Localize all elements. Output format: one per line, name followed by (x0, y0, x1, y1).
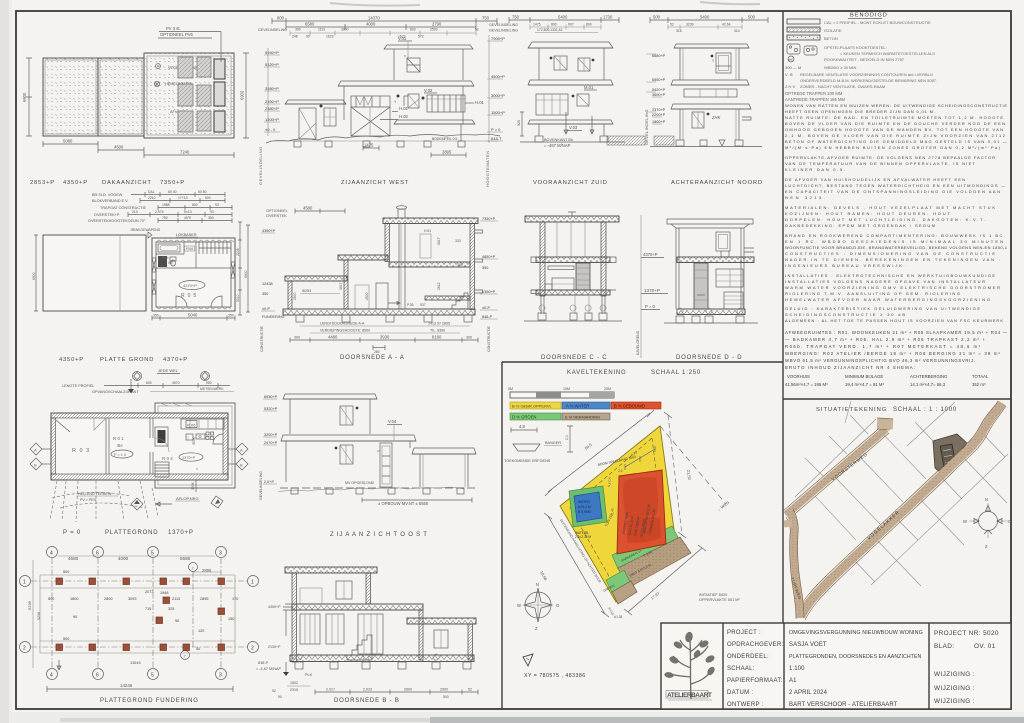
svg-text:500: 500 (63, 637, 69, 641)
svg-text:2073: 2073 (145, 590, 153, 594)
svg-text:ZHK: ZHK (711, 115, 721, 120)
svg-text:3980+P: 3980+P (265, 86, 279, 91)
svg-text:LENGTEDOORSNEDE A-A: LENGTEDOORSNEDE A-A (320, 322, 365, 326)
svg-text:OPTIONEEL: OPTIONEEL (266, 209, 288, 213)
svg-text:350: 350 (482, 266, 488, 270)
svg-text:DOORSNEDE D - D: DOORSNEDE D - D (676, 355, 742, 361)
svg-text:2790: 2790 (432, 22, 442, 27)
svg-text:W: W (963, 519, 967, 524)
svg-text:172,800,1331,52: 172,800,1331,52 (537, 28, 563, 32)
svg-text:800: 800 (586, 23, 592, 27)
svg-text:3: 3 (219, 673, 222, 679)
svg-text:OV. 01: OV. 01 (974, 643, 996, 650)
svg-text:6550+P: 6550+P (652, 78, 666, 82)
svg-text:14,1 m²×4,7= 66,3: 14,1 m²×4,7= 66,3 (910, 382, 946, 387)
svg-text:2380+P: 2380+P (265, 106, 279, 111)
svg-text:MINIMUM BIJLAGE: MINIMUM BIJLAGE (845, 374, 883, 379)
svg-text:1948: 1948 (160, 591, 168, 595)
svg-text:A % WATER: A % WATER (566, 404, 589, 409)
svg-text:352 m³: 352 m³ (972, 382, 986, 387)
svg-text:B: B (34, 463, 37, 468)
svg-text:XY = 780575 , 483386: XY = 780575 , 483386 (524, 673, 586, 679)
svg-text:800: 800 (410, 28, 416, 32)
svg-text:OMGEVINGSVERGUNNING NIEUWBOUW: OMGEVINGSVERGUNNING NIEUWBOUW WONING (789, 630, 923, 636)
svg-text:350: 350 (457, 263, 463, 267)
svg-text:1350+P: 1350+P (482, 290, 496, 294)
svg-text:BRUTO INHOUD ZIJAANZICHT NR 4: BRUTO INHOUD ZIJAANZICHT NR 4 SHEMA: (785, 365, 915, 370)
svg-text:WBDBO ≥ 30 MIN: WBDBO ≥ 30 MIN (824, 65, 857, 70)
svg-text:2612: 2612 (437, 282, 441, 290)
svg-text:715: 715 (145, 607, 151, 611)
svg-text:P = 0: P = 0 (63, 530, 81, 536)
svg-text:500: 500 (748, 15, 756, 20)
svg-text:6: 6 (96, 551, 99, 557)
svg-text:4370+P: 4370+P (163, 357, 188, 363)
svg-text:⊞E: ⊞E (117, 443, 123, 448)
svg-text:GEVELINDELING: GEVELINDELING (259, 471, 263, 500)
svg-text:B % GEBOUWD: B % GEBOUWD (614, 404, 645, 409)
svg-text:H.51: H.51 (424, 229, 431, 233)
svg-text:DE AFVOER VAN HUISHOUDELIJK EN: DE AFVOER VAN HUISHOUDELIJK EN AFVALWATE… (785, 177, 965, 182)
svg-text:537: 537 (420, 303, 426, 307)
svg-text:500: 500 (443, 695, 449, 699)
svg-text:B: B (240, 463, 243, 468)
svg-text:5: 5 (151, 551, 154, 557)
svg-text:5: 5 (151, 673, 154, 679)
svg-text:5420+P: 5420+P (652, 88, 666, 92)
svg-text:ACHTERAANZICHT NOORD: ACHTERAANZICHT NOORD (671, 180, 763, 186)
svg-text:8160: 8160 (432, 335, 442, 340)
svg-text:NEN 3215.: NEN 3215. (785, 195, 825, 200)
svg-text:JEDE WEL: JEDE WEL (158, 368, 179, 373)
svg-text:JRNW.GEWAPEND: JRNW.GEWAPEND (130, 228, 161, 232)
svg-text:13645: 13645 (130, 661, 141, 665)
svg-text:4850+P: 4850+P (482, 255, 496, 259)
svg-text:920: 920 (517, 120, 521, 126)
svg-text:R 0 1: R 0 1 (113, 436, 124, 441)
svg-text:= -467 M/NAP: = -467 M/NAP (544, 143, 571, 148)
svg-text:WOONFUNCTIE VOOR BRANDZIJDE, B: WOONFUNCTIE VOOR BRANDZIJDE, BRANDWATERB… (785, 245, 1008, 250)
svg-text:4: 4 (50, 673, 53, 679)
svg-text:1502: 1502 (290, 681, 298, 685)
svg-text:V.03: V.03 (569, 125, 578, 130)
svg-text:VOORHUIS: VOORHUIS (787, 374, 810, 379)
svg-text:2210: 2210 (148, 196, 156, 200)
svg-text:P = ± 0: P = ± 0 (114, 453, 126, 457)
svg-text:Z.H.V: Z.H.V (785, 84, 796, 89)
svg-text:3000+P: 3000+P (491, 93, 505, 98)
svg-text:P = 0: P = 0 (645, 304, 655, 309)
svg-text:500: 500 (653, 15, 661, 20)
svg-text:ALGEMEEN : AL HET TOE TE PASSE: ALGEMEEN : AL HET TOE TE PASSEN HOUT IS … (785, 318, 1003, 323)
svg-text:600: 600 (205, 196, 211, 200)
svg-text:5940+P: 5940+P (265, 50, 279, 55)
svg-text:2,017: 2,017 (326, 688, 335, 692)
svg-text:4580: 4580 (68, 556, 79, 561)
svg-text:N: N (985, 497, 988, 502)
svg-text:PROJECT :: PROJECT : (727, 630, 761, 636)
svg-text:60 40: 60 40 (168, 190, 177, 194)
svg-text:7240: 7240 (180, 150, 190, 155)
svg-text:BLOKVERBAND E.V.: BLOKVERBAND E.V. (92, 199, 128, 203)
svg-text:2895: 2895 (442, 150, 452, 155)
svg-text:BOVEN DE VLOER VAN DIE RUIMTE: BOVEN DE VLOER VAN DIE RUIMTE EN DE DOUC… (785, 121, 1005, 126)
svg-text:6900: 6900 (240, 90, 245, 100)
svg-text:GELUID : KARAKTERISTIEK GELUID: GELUID : KARAKTERISTIEK GELUIDWERING VAN… (785, 306, 980, 311)
svg-text:280: 280 (374, 350, 380, 354)
svg-text:800: 800 (551, 23, 557, 27)
svg-text:1: 1 (251, 580, 254, 586)
svg-text:Z IJ A A N Z I C H T O O S T: Z IJ A A N Z I C H T O O S T (330, 532, 428, 538)
svg-text:ZIJAANZICHT WEST: ZIJAANZICHT WEST (341, 180, 409, 186)
svg-text:PV > PEIL: PV > PEIL (80, 498, 97, 502)
svg-text:SCHAAL 1:250: SCHAAL 1:250 (651, 370, 701, 376)
svg-text:SCHAAL : 1 : 1000: SCHAAL : 1 : 1000 (893, 407, 957, 413)
svg-text:5686: 5686 (180, 556, 191, 561)
svg-text:GEVELINDELING: GEVELINDELING (489, 29, 518, 33)
svg-text:6680+P: 6680+P (652, 54, 666, 58)
svg-text:KAVELGRENS: KAVELGRENS (636, 330, 640, 355)
svg-text:6900: 6900 (244, 270, 248, 278)
svg-text:1475: 1475 (364, 143, 374, 148)
svg-text:HELLEND TERREIN: HELLEND TERREIN (78, 492, 112, 496)
svg-text:3000: 3000 (341, 28, 349, 32)
svg-text:2,6: 2,6 (618, 469, 623, 473)
svg-text:⊕K: ⊕K (788, 58, 794, 62)
svg-text:60 80: 60 80 (198, 190, 207, 194)
svg-text:2617: 2617 (437, 237, 441, 245)
svg-text:1800: 1800 (70, 597, 78, 601)
svg-text:WIJZIGING :: WIJZIGING : (934, 698, 975, 705)
svg-text:ONTWERP :: ONTWERP : (727, 702, 764, 708)
svg-text:5×13: 5×13 (184, 210, 192, 214)
svg-text:GEVELINDELING: GEVELINDELING (258, 28, 287, 32)
svg-text:OPTREDE TRAPPEN 200 MM: OPTREDE TRAPPEN 200 MM (785, 91, 843, 96)
svg-text:AFWEEGRUIMTES : R01. WOONKEUKE: AFWEEGRUIMTES : R01. WOONKEUKEN 21 m² + … (785, 330, 1008, 335)
svg-text:40: 40 (196, 647, 200, 651)
svg-text:4370+P: 4370+P (183, 283, 197, 288)
svg-text:GEVELINDELING: GEVELINDELING (258, 146, 263, 185)
svg-text:800: 800 (192, 203, 198, 207)
svg-text:BETON OF WATERDICHTING DIE GE: BETON OF WATERDICHTING DIE GEMIDDELD MAG… (785, 139, 1007, 144)
svg-text:OPPERVLAKTE-AFVOER RUIMTE: DE: OPPERVLAKTE-AFVOER RUIMTE: DE VOLGENS NE… (785, 155, 995, 160)
svg-text:SCHEIDINGSCONSTRUCTIE ≥ 30 dB: SCHEIDINGSCONSTRUCTIE ≥ 30 dB (785, 312, 905, 317)
svg-text:4350+P: 4350+P (59, 357, 84, 363)
svg-text:GEVELINDELING: GEVELINDELING (489, 23, 518, 27)
svg-text:1623: 1623 (326, 35, 334, 39)
svg-text:2,033: 2,033 (363, 688, 372, 692)
svg-text:10M: 10M (563, 387, 570, 391)
svg-text:19,4 m²×4,7 = 91 M³: 19,4 m²×4,7 = 91 M³ (845, 382, 884, 387)
svg-text:B 0,56M: B 0,56M (578, 510, 591, 514)
svg-text:2895: 2895 (200, 597, 208, 601)
svg-text:D % GROEN: D % GROEN (512, 415, 536, 420)
svg-text:2 APRIL 2024: 2 APRIL 2024 (789, 690, 828, 696)
svg-text:TRAPGAT CONSTRUCTIE: TRAPGAT CONSTRUCTIE (100, 206, 147, 210)
svg-text:1800+P: 1800+P (652, 120, 666, 124)
svg-text:V.01: V.01 (398, 36, 407, 41)
svg-text:Z: Z (535, 626, 538, 631)
svg-text:6: 6 (96, 673, 99, 679)
svg-text:1370+P: 1370+P (168, 530, 194, 536)
svg-text:PLK: PLK (305, 673, 313, 677)
svg-text:2208: 2208 (236, 248, 240, 256)
svg-text:4370+P: 4370+P (643, 252, 658, 257)
svg-text:R 0 3: R 0 3 (72, 448, 90, 454)
svg-text:572: 572 (418, 35, 424, 39)
svg-text:3930: 3930 (380, 335, 390, 340)
svg-text:2200+P: 2200+P (652, 113, 666, 117)
svg-text:3093: 3093 (128, 597, 136, 601)
svg-text:R06: R06 (186, 246, 194, 251)
svg-text:DATUM :: DATUM : (727, 690, 753, 696)
svg-text:1500+P: 1500+P (491, 110, 505, 115)
svg-text:GEVELINDELING: GEVELINDELING (645, 109, 649, 145)
svg-text:14246: 14246 (120, 683, 133, 688)
svg-text:1988: 1988 (162, 203, 170, 207)
svg-text:1730: 1730 (603, 15, 613, 20)
svg-text:= KEUKEN TERMISCH WARMTETOESTE: = KEUKEN TERMISCH WARMTETOESTELLEN ALS (840, 51, 935, 56)
svg-text:120: 120 (198, 629, 204, 633)
svg-text:VERDIEPINGSHOOGTE: 8500: VERDIEPINGSHOOGTE: 8500 (320, 329, 370, 333)
svg-text:OPSTELPLAATS KOOKTOESTEL:: OPSTELPLAATS KOOKTOESTEL: (824, 45, 887, 50)
svg-text:v: v (404, 54, 406, 58)
svg-text:DAKBEDEKKING: EPDM MET GROENDA: DAKBEDEKKING: EPDM MET GROENDAK / SEDUM (785, 223, 935, 228)
svg-text:ROOKKWALITEIT - BEDOELD IN NEN: ROOKKWALITEIT - BEDOELD IN NEN 2757 (824, 57, 905, 62)
svg-text:= -4,67 M/NAP: = -4,67 M/NAP (256, 667, 281, 671)
svg-text:3239: 3239 (686, 23, 694, 27)
svg-text:2,975: 2,975 (155, 210, 164, 214)
svg-text:1191: 1191 (318, 28, 325, 32)
svg-text:MV OPGESLOND: MV OPGESLOND (345, 481, 375, 485)
svg-text:OPPERVLAKTE 501 M²: OPPERVLAKTE 501 M² (699, 598, 740, 602)
svg-text:Z: Z (985, 544, 988, 549)
svg-text:TOTAAL: TOTAAL (972, 374, 989, 379)
svg-text:DOORSNEDE B - B: DOORSNEDE B - B (334, 698, 400, 704)
svg-text:214: 214 (132, 210, 138, 214)
svg-text:2,2×2,35 M: 2,2×2,35 M (575, 535, 591, 539)
svg-text:INSTALLATIES VOLGENS NADERE O: INSTALLATIES VOLGENS NADERE OPGAVE VAN I… (785, 279, 985, 284)
svg-text:45°E: 45°E (184, 216, 192, 220)
svg-text:93: 93 (215, 203, 219, 207)
svg-text:90: 90 (73, 615, 77, 619)
svg-text:ACHTERBERGING: ACHTERBERGING (910, 374, 948, 379)
svg-text:6580: 6580 (305, 22, 315, 27)
svg-text:2,0+P: 2,0+P (264, 480, 274, 484)
svg-text:5080: 5080 (63, 139, 73, 144)
svg-text:SASJA VOET: SASJA VOET (789, 642, 827, 648)
svg-text:350: 350 (153, 314, 159, 318)
svg-text:333: 333 (455, 239, 461, 243)
svg-text:DORPELEN: HOUT MET LUCHTLEIDIN: DORPELEN: HOUT MET LUCHTLEIDING, DAKGOTE… (785, 217, 985, 222)
svg-text:OMHOOG GEBOGEN HOOGTE VAN DE W: OMHOOG GEBOGEN HOOGTE VAN DE WANDEN BV, … (785, 127, 1003, 132)
svg-text:MATERIALEN: GEVELS , HOUT VEZ: MATERIALEN: GEVELS , HOUT VEZELPLAAT MET… (785, 205, 995, 210)
svg-text:SITUATIETEKENING: SITUATIETEKENING (816, 407, 887, 413)
svg-text:KAVELTEKENING: KAVELTEKENING (567, 370, 627, 376)
svg-text:OVERSTEK+P: OVERSTEK+P (94, 213, 120, 217)
svg-text:6900: 6900 (22, 92, 27, 102)
svg-text:A1,38: A1,38 (614, 615, 623, 619)
svg-text:5236: 5236 (27, 600, 32, 610)
svg-text:7350+P: 7350+P (482, 217, 496, 221)
svg-text:□: □ (187, 436, 189, 440)
svg-text:2315: 2315 (290, 688, 298, 692)
svg-text:4350+P: 4350+P (63, 180, 88, 186)
svg-text:500: 500 (63, 570, 69, 574)
svg-text:2: 2 (251, 646, 254, 652)
svg-text:VOORAANZICHT ZUID: VOORAANZICHT ZUID (533, 180, 608, 186)
svg-text:4500: 4500 (114, 145, 124, 150)
svg-text:1475: 1475 (533, 23, 541, 27)
svg-text:WBVO 61,5 m² VERGUNNINGSPLICH: WBVO 61,5 m² VERGUNNINGSPLICHTIG BVO 46,… (785, 358, 975, 363)
svg-text:300: 300 (294, 336, 300, 340)
svg-text:OPDRACHGEVER:: OPDRACHGEVER: (727, 642, 784, 648)
svg-text:25M: 25M (604, 387, 611, 391)
svg-text:M.01: M.01 (584, 85, 594, 90)
svg-text:BOVENKANT Bk: BOVENKANT Bk (544, 138, 573, 142)
svg-text:PLATTEGRONDEN, DOORSNEDES EN A: PLATTEGRONDEN, DOORSNEDES EN AANZICHTEN (789, 654, 922, 660)
svg-text:A=5,2 M: A=5,2 M (578, 505, 591, 509)
svg-text:H.01: H.01 (475, 100, 485, 105)
svg-text:WBERGING: R02 ATELIER /BERGE: WBERGING: R02 ATELIER /BERGE 18 m² + R08… (785, 351, 1001, 356)
svg-text:2800: 2800 (104, 597, 112, 601)
svg-text:750: 750 (162, 216, 168, 220)
svg-text:LENGTE PROFIEL: LENGTE PROFIEL (62, 384, 95, 388)
svg-text:848-T: 848-T (491, 136, 502, 141)
svg-text:500: 500 (48, 597, 54, 601)
svg-text:AANTREDE TRAPPEN 185 MM: AANTREDE TRAPPEN 185 MM (785, 97, 845, 102)
svg-text:AFLOP.NRG: AFLOP.NRG (176, 496, 199, 501)
svg-text:90: 90 (306, 35, 310, 39)
svg-text:4500+P: 4500+P (491, 74, 505, 79)
svg-text:DAL: DAL (148, 190, 155, 194)
svg-text:316: 316 (676, 29, 682, 33)
svg-text:DAKAANZICHT: DAKAANZICHT (102, 180, 152, 186)
svg-text:350K: 350K (191, 481, 195, 490)
svg-text:314: 314 (734, 29, 740, 33)
svg-text:17+13: 17+13 (178, 196, 188, 200)
svg-text:350K: 350K (192, 436, 196, 445)
svg-text:14370: 14370 (368, 16, 380, 21)
svg-text:90: 90 (175, 619, 179, 623)
svg-text:5400: 5400 (558, 15, 568, 20)
svg-text:OVERSTEKHOOGTEKOZIJN 70°: OVERSTEKHOOGTEKOZIJN 70° (88, 219, 146, 223)
svg-text:3: 3 (219, 551, 222, 557)
svg-text:52: 52 (475, 28, 479, 32)
svg-text:6930+P: 6930+P (264, 395, 278, 399)
svg-text:838-P: 838-P (258, 661, 269, 665)
svg-text:800: 800 (277, 16, 285, 21)
svg-text:A1: A1 (789, 678, 797, 684)
svg-text:5400: 5400 (700, 15, 710, 20)
svg-text:300: 300 (295, 28, 301, 32)
svg-text:600: 600 (146, 381, 152, 385)
svg-text:HEEFT GEEN OPENINGEN DIE BREDE: HEEFT GEEN OPENINGEN DIE BREDER ZIJN DAN… (785, 109, 935, 114)
svg-text:V.04: V.04 (388, 419, 397, 424)
svg-text:RIOLERING T.M.V. AANSLUITING O: RIOLERING T.M.V. AANSLUITING OP GEM. RIO… (785, 291, 960, 296)
svg-text:350: 350 (262, 292, 268, 296)
svg-text:4350+P: 4350+P (268, 605, 281, 609)
svg-text:TOEKOMENDE ERFGENS: TOEKOMENDE ERFGENS (504, 459, 551, 463)
svg-text:350: 350 (208, 216, 214, 220)
svg-text:5320+P: 5320+P (264, 407, 278, 411)
svg-text:PV 3 st.: PV 3 st. (166, 26, 181, 31)
svg-text:2: 2 (23, 646, 26, 652)
svg-text:41,56m²×4,7 = 195 M³: 41,56m²×4,7 = 195 M³ (785, 382, 828, 387)
svg-text:R06b. TRAPGAT VERD. 1,7 m² + R: R06b. TRAPGAT VERD. 1,7 m² + R07 METERKA… (785, 344, 981, 349)
svg-text:⊞253: ⊞253 (302, 289, 311, 293)
svg-text:848-P: 848-P (482, 315, 493, 319)
svg-text:H.02: H.02 (399, 114, 409, 119)
svg-text:±0-P: ±0-P (482, 306, 490, 310)
svg-text:2500: 2500 (365, 292, 369, 300)
svg-text:INITIATIEF 5020: INITIATIEF 5020 (699, 593, 727, 597)
svg-text:300 — M: 300 — M (785, 65, 801, 70)
svg-text:METSELWERK: METSELWERK (200, 387, 224, 391)
svg-text:WATER: WATER (578, 500, 590, 504)
svg-text:NATTE RUIMTE: DE BAD- EN TOILE: NATTE RUIMTE: DE BAD- EN TOILETRUIMTE MO… (785, 115, 1003, 120)
svg-text:907: 907 (568, 23, 574, 27)
svg-text:248: 248 (292, 35, 298, 39)
svg-text:52: 52 (468, 688, 472, 692)
svg-text:± OPBOUW MV.NT ± 6550: ± OPBOUW MV.NT ± 6550 (378, 501, 429, 506)
svg-text:REGELBARE VENTILATIE VOORZIENI: REGELBARE VENTILATIE VOORZIENINGS CONTOU… (800, 72, 933, 77)
svg-text:3917: 3917 (339, 282, 343, 290)
svg-text:3010: 3010 (236, 294, 240, 302)
svg-text:52: 52 (272, 689, 276, 693)
svg-text:PAPIERFORMAAT:: PAPIERFORMAAT: (727, 678, 783, 684)
svg-text:5040: 5040 (188, 313, 198, 318)
svg-text:DOORSNEDE A - A: DOORSNEDE A - A (340, 355, 405, 361)
svg-text:PLATTE GROND: PLATTE GROND (100, 357, 154, 363)
svg-text:950: 950 (206, 381, 212, 385)
svg-text:FUNDERING: FUNDERING (262, 315, 285, 319)
svg-text:1: 1 (23, 580, 26, 586)
svg-text:P.35: P.35 (407, 303, 414, 307)
svg-text:±0-P: ±0-P (262, 307, 270, 311)
svg-text:BENODIGD: BENODIGD (850, 13, 888, 19)
svg-text:2600: 2600 (293, 292, 297, 300)
svg-text:1413 57 2895: 1413 57 2895 (428, 322, 450, 326)
svg-text:3200+P: 3200+P (264, 433, 278, 437)
svg-text:CONSTRUCTIE: CONSTRUCTIE (260, 325, 264, 352)
svg-text:93: 93 (210, 210, 214, 214)
svg-text:2800: 2800 (404, 688, 412, 692)
svg-text:2,0: 2,0 (565, 435, 569, 440)
svg-text:PLATTEGROND: PLATTEGROND (105, 530, 158, 536)
svg-text:4: 4 (50, 551, 53, 557)
svg-text:2370+P: 2370+P (652, 108, 666, 112)
svg-text:325: 325 (168, 607, 174, 611)
svg-text:2593: 2593 (430, 28, 438, 32)
svg-text:PROJECT NR: 5020: PROJECT NR: 5020 (934, 630, 999, 637)
svg-text:170: 170 (232, 597, 238, 601)
svg-text:P = 0: P = 0 (491, 127, 501, 132)
svg-text:2853+P: 2853+P (30, 180, 55, 186)
svg-text:BART VERSCHOOR - ATELIERBAART: BART VERSCHOOR - ATELIERBAART (789, 702, 898, 708)
svg-text:EN CAPACITEIT VAN DE ONTSPANNI: EN CAPACITEIT VAN DE ONTSPANNINGSLEIDING… (785, 189, 1000, 194)
svg-text:300: 300 (466, 336, 472, 340)
svg-text:BANGER: BANGER (545, 441, 561, 445)
svg-text:WIJZIGING :: WIJZIGING : (934, 671, 975, 678)
svg-text:BR.SLD. VOGEW: BR.SLD. VOGEW (92, 193, 123, 197)
svg-text:VAN DE TEMPERATUUR VAN DE BINN: VAN DE TEMPERATUUR VAN DE BINNEN OPPERVL… (785, 161, 976, 166)
svg-text:350: 350 (228, 314, 234, 318)
svg-text:4000: 4000 (118, 556, 129, 561)
svg-text:BLAD:: BLAD: (934, 643, 954, 650)
svg-text:V. ⊛: V. ⊛ (785, 72, 793, 77)
svg-text:7900+P: 7900+P (491, 36, 505, 41)
